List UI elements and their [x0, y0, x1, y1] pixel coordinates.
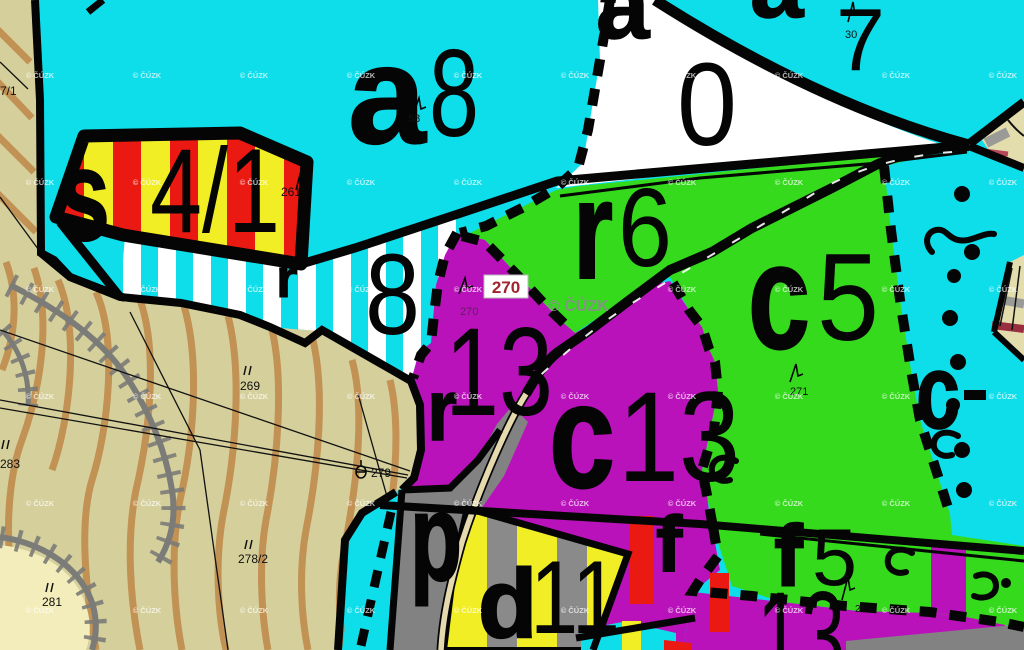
- svg-text:© ČÚZK: © ČÚZK: [347, 285, 376, 294]
- svg-text:© ČÚZK: © ČÚZK: [989, 178, 1018, 187]
- svg-text:© ČÚZK: © ČÚZK: [133, 499, 162, 508]
- svg-text:© ČÚZK: © ČÚZK: [989, 285, 1018, 294]
- svg-text:c: c: [549, 352, 615, 519]
- svg-text:© ČÚZK: © ČÚZK: [775, 606, 804, 615]
- svg-text:270: 270: [460, 306, 478, 318]
- svg-text:13: 13: [445, 303, 553, 442]
- svg-text:© ČÚZK: © ČÚZK: [882, 285, 911, 294]
- svg-text:© ČÚZK: © ČÚZK: [454, 285, 483, 294]
- svg-text:© ČÚZK: © ČÚZK: [240, 606, 269, 615]
- svg-text:© ČÚZK: © ČÚZK: [775, 499, 804, 508]
- svg-text:© ČÚZK: © ČÚZK: [133, 392, 162, 401]
- svg-text:© ČÚZK: © ČÚZK: [26, 499, 55, 508]
- svg-text:a: a: [750, 0, 804, 38]
- svg-text:© ČÚZK: © ČÚZK: [133, 71, 162, 80]
- svg-text:7/1: 7/1: [0, 84, 17, 98]
- svg-text:© ČÚZK: © ČÚZK: [882, 178, 911, 187]
- svg-text:© ČÚZK: © ČÚZK: [989, 392, 1018, 401]
- svg-text:© ČÚZK: © ČÚZK: [240, 499, 269, 508]
- svg-text:6: 6: [618, 166, 672, 290]
- svg-text:© ČÚZK: © ČÚZK: [454, 606, 483, 615]
- svg-text:r: r: [276, 247, 297, 309]
- svg-text:© ČÚZK: © ČÚZK: [561, 499, 590, 508]
- svg-text:269: 269: [240, 379, 260, 393]
- svg-text:© ČÚZK: © ČÚZK: [347, 392, 376, 401]
- svg-text:© ČÚZK: © ČÚZK: [775, 392, 804, 401]
- svg-text:© ČÚZK: © ČÚZK: [26, 392, 55, 401]
- svg-text:© ČÚZK: © ČÚZK: [240, 178, 269, 187]
- svg-text:© ČÚZK: © ČÚZK: [454, 178, 483, 187]
- svg-text:c: c: [916, 333, 960, 451]
- svg-text:© ČÚZK: © ČÚZK: [989, 71, 1018, 80]
- svg-text:© ČÚZK: © ČÚZK: [454, 499, 483, 508]
- svg-text:© ČÚZK: © ČÚZK: [240, 392, 269, 401]
- svg-text:© ČÚZK: © ČÚZK: [454, 392, 483, 401]
- svg-text:© ČÚZK: © ČÚZK: [882, 606, 911, 615]
- svg-text:5: 5: [817, 229, 879, 367]
- svg-text:8: 8: [429, 25, 479, 163]
- svg-text:© ČÚZK: © ČÚZK: [454, 71, 483, 80]
- svg-text:© ČÚZK: © ČÚZK: [347, 499, 376, 508]
- svg-text:© ČÚZK: © ČÚZK: [26, 285, 55, 294]
- svg-text:© ČÚZK: © ČÚZK: [668, 178, 697, 187]
- svg-text:© ČÚZK: © ČÚZK: [775, 71, 804, 80]
- svg-text:© ČÚZK: © ČÚZK: [989, 499, 1018, 508]
- svg-text:58: 58: [408, 113, 420, 125]
- svg-text:30: 30: [845, 29, 857, 41]
- svg-text:11: 11: [530, 540, 620, 650]
- svg-text:270: 270: [492, 278, 520, 297]
- svg-text:261: 261: [281, 185, 301, 199]
- svg-text:13: 13: [618, 366, 740, 509]
- svg-text:© ČÚZK: © ČÚZK: [240, 285, 269, 294]
- svg-text:© ČÚZK: © ČÚZK: [561, 392, 590, 401]
- svg-text:© ČÚZK: © ČÚZK: [347, 606, 376, 615]
- svg-text:0: 0: [677, 39, 737, 171]
- svg-text:© ČÚZK: © ČÚZK: [561, 71, 590, 80]
- svg-text:a: a: [348, 16, 427, 173]
- svg-text:© ČÚZK: © ČÚZK: [882, 392, 911, 401]
- svg-text:278/2: 278/2: [238, 552, 268, 566]
- svg-text:© ČÚZK: © ČÚZK: [347, 178, 376, 187]
- svg-text:f: f: [656, 499, 683, 588]
- svg-text:r: r: [573, 151, 613, 308]
- svg-text:© ČÚZK: © ČÚZK: [882, 71, 911, 80]
- svg-text:© ČÚZK: © ČÚZK: [775, 178, 804, 187]
- svg-text:© ČÚZK: © ČÚZK: [133, 178, 162, 187]
- svg-text:a: a: [596, 0, 650, 59]
- svg-text:2: 2: [855, 604, 861, 615]
- svg-text:© ČÚZK: © ČÚZK: [668, 71, 697, 80]
- svg-text:7: 7: [836, 0, 885, 89]
- svg-text:© ČÚZK: © ČÚZK: [668, 499, 697, 508]
- svg-text:© ČÚZK: © ČÚZK: [561, 606, 590, 615]
- svg-text:© ČÚZK: © ČÚZK: [668, 392, 697, 401]
- svg-text:© ČÚZK: © ČÚZK: [133, 606, 162, 615]
- svg-text:© ČÚZK: © ČÚZK: [26, 178, 55, 187]
- svg-text:© ČÚZK: © ČÚZK: [668, 606, 697, 615]
- svg-text:© ČÚZK: © ČÚZK: [882, 499, 911, 508]
- svg-text:© ČÚZK: © ČÚZK: [775, 285, 804, 294]
- svg-text:© ČÚZK: © ČÚZK: [989, 606, 1018, 615]
- svg-text:4/1: 4/1: [150, 124, 280, 258]
- svg-text:© ČÚZK: © ČÚZK: [240, 71, 269, 80]
- svg-text:© ČÚZK: © ČÚZK: [548, 296, 609, 315]
- svg-text:279: 279: [371, 466, 391, 480]
- svg-text:© ČÚZK: © ČÚZK: [347, 71, 376, 80]
- svg-text:s: s: [58, 122, 110, 268]
- svg-text:d: d: [478, 549, 537, 650]
- svg-text:© ČÚZK: © ČÚZK: [561, 178, 590, 187]
- svg-text:8: 8: [365, 231, 420, 359]
- svg-text:283: 283: [0, 457, 20, 471]
- svg-text:© ČÚZK: © ČÚZK: [26, 71, 55, 80]
- svg-text:© ČÚZK: © ČÚZK: [133, 285, 162, 294]
- svg-text:r: r: [427, 362, 457, 459]
- svg-text:© ČÚZK: © ČÚZK: [26, 606, 55, 615]
- svg-text:© ČÚZK: © ČÚZK: [668, 285, 697, 294]
- svg-text:c: c: [748, 212, 810, 380]
- svg-text:p: p: [410, 470, 462, 607]
